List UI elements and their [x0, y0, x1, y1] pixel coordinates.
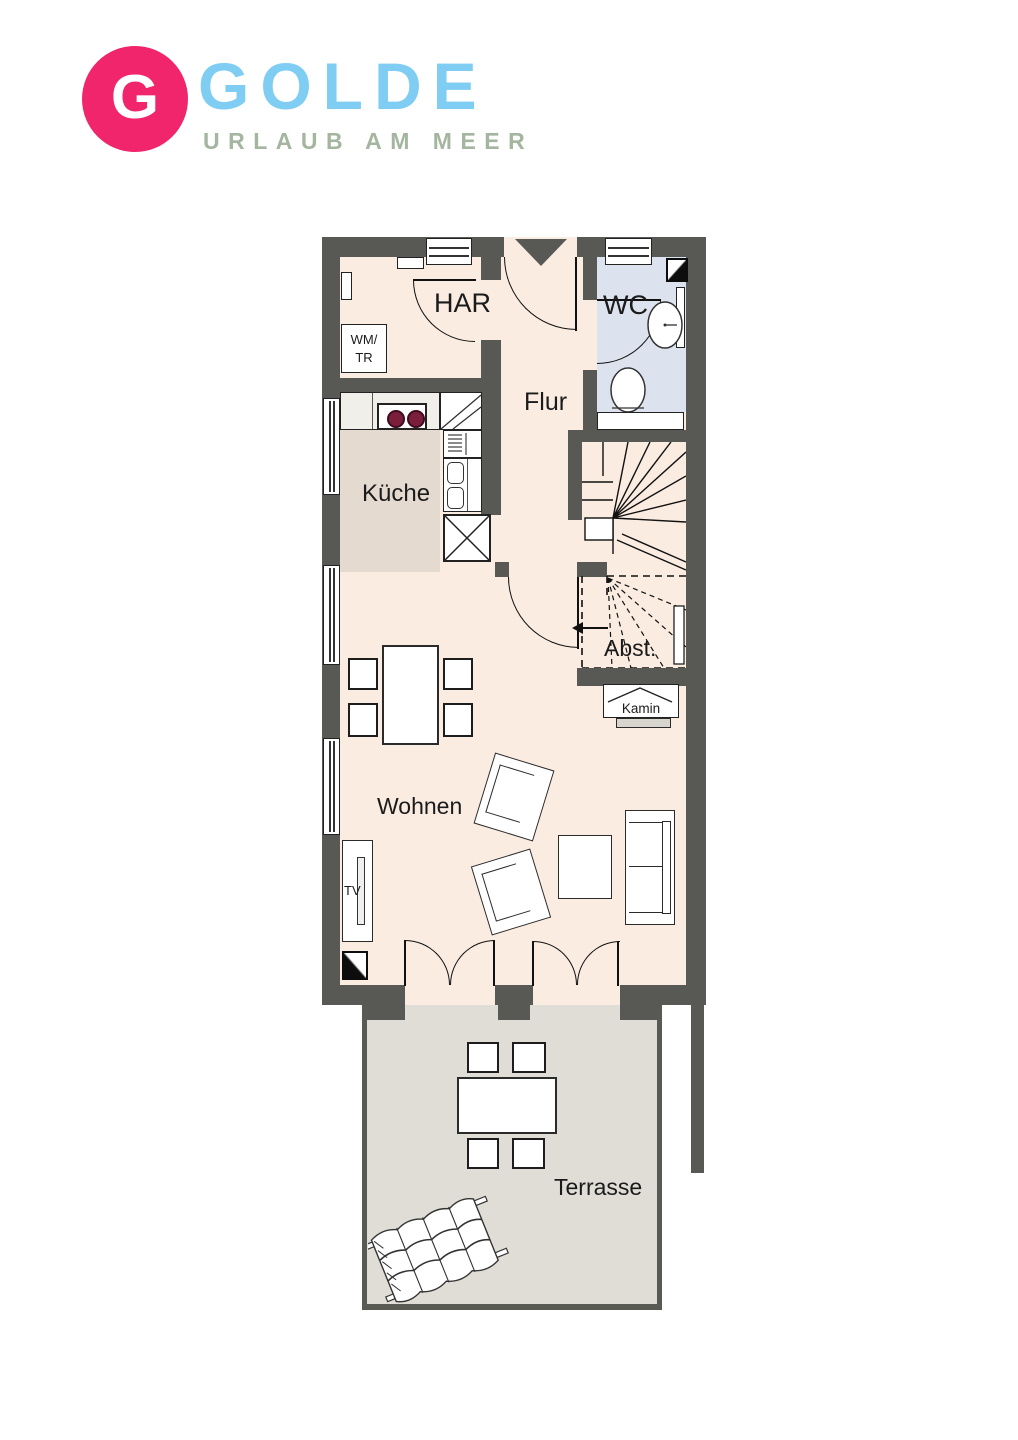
logo-circle: G: [82, 46, 188, 152]
room-label-wohnen: Wohnen: [377, 793, 462, 820]
burner: [387, 410, 405, 428]
room-label-abstellraum: Abst.: [604, 635, 656, 662]
kitchen-drainer: [443, 430, 482, 458]
sofa: [625, 810, 675, 925]
front-door-leaf: [575, 257, 577, 331]
wall-segment: [583, 370, 597, 430]
window: [605, 238, 652, 265]
corner-cabinet: [440, 392, 482, 430]
har-door-leaf: [413, 279, 476, 281]
wall-segment: [481, 257, 501, 280]
fireplace: Kamin: [603, 684, 679, 718]
wall-segment: [686, 237, 706, 1005]
abst-arrow-icon: [572, 622, 608, 634]
french-door-leaf: [617, 941, 619, 986]
tv-label: TV: [344, 883, 361, 898]
wall-segment: [481, 340, 501, 515]
wall-segment: [367, 1005, 405, 1020]
refrigerator-cabinet: [443, 514, 491, 562]
room-label-wc: WC: [603, 290, 648, 321]
coffee-table: [558, 835, 612, 899]
wall-niche: [341, 272, 352, 300]
kitchen-sink: [443, 458, 482, 512]
fireplace-base: [616, 718, 671, 728]
dining-chair: [443, 658, 473, 690]
wall-segment: [340, 378, 481, 392]
dining-chair: [348, 703, 378, 737]
dining-chair: [348, 658, 378, 690]
wall-segment: [620, 1005, 660, 1020]
dining-chair: [443, 703, 473, 737]
terrace-door-opening: [533, 985, 620, 1005]
window: [426, 238, 472, 265]
room-label-kueche: Küche: [362, 480, 430, 508]
window: [323, 398, 340, 495]
wall-segment: [568, 430, 686, 442]
fireplace-label: Kamin: [604, 701, 678, 716]
sun-lounger: [368, 1188, 518, 1313]
terrace-door-opening: [405, 985, 495, 1005]
french-door-leaf: [404, 940, 406, 986]
wall-segment: [495, 562, 509, 577]
washer-dryer: WM/ TR: [341, 324, 387, 373]
window: [323, 565, 340, 665]
french-door-leaf: [532, 941, 534, 986]
shaft-symbol: [342, 951, 368, 980]
cooktop: [377, 403, 427, 430]
room-label-terrasse: Terrasse: [554, 1174, 642, 1201]
wall-segment: [583, 257, 597, 300]
washer-dryer-label: WM/ TR: [351, 331, 378, 366]
terrace-chair: [512, 1042, 546, 1073]
terrace-table: [457, 1077, 557, 1134]
terrace-privacy-wall: [691, 1005, 704, 1173]
burner: [407, 410, 425, 428]
brand-name: GOLDE: [198, 48, 488, 124]
shaft-symbol: [666, 258, 688, 282]
wall-segment: [322, 985, 706, 1005]
dining-table: [382, 645, 439, 745]
logo-monogram: G: [111, 62, 159, 133]
terrace-chair: [467, 1138, 499, 1169]
tv-board: TV: [342, 840, 373, 942]
french-door-leaf: [493, 940, 495, 986]
brand-tagline: URLAUB AM MEER: [203, 128, 533, 155]
wc-fixture: [597, 412, 684, 430]
room-label-flur: Flur: [524, 388, 567, 417]
wall-niche: [397, 257, 424, 269]
window: [323, 738, 340, 835]
terrace-chair: [512, 1138, 545, 1169]
wc-sink: [646, 300, 684, 350]
room-label-har: HAR: [434, 288, 491, 319]
terrace-chair: [467, 1042, 499, 1073]
floorplan-page: G GOLDE URLAUB AM MEER: [0, 0, 1018, 1440]
wall-segment: [498, 1005, 530, 1020]
wc-toilet: [608, 366, 648, 416]
